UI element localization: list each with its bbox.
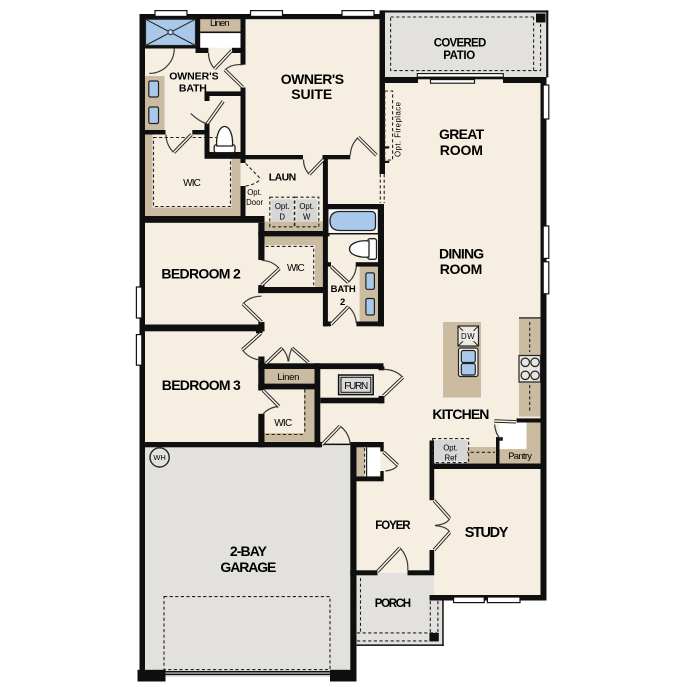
svg-text:BEDROOM 3: BEDROOM 3 xyxy=(162,377,241,393)
svg-text:PORCH: PORCH xyxy=(375,598,411,610)
svg-text:Opt.: Opt. xyxy=(443,444,458,453)
svg-text:WIC: WIC xyxy=(274,418,292,429)
svg-text:Opt.: Opt. xyxy=(275,202,290,211)
svg-text:ROOM: ROOM xyxy=(440,142,483,158)
svg-text:DW: DW xyxy=(461,332,475,341)
svg-text:WH: WH xyxy=(153,453,166,462)
svg-text:COVERED: COVERED xyxy=(434,38,487,50)
svg-text:D: D xyxy=(279,212,285,221)
svg-text:2: 2 xyxy=(340,297,345,308)
svg-text:ROOM: ROOM xyxy=(440,261,483,277)
svg-text:Ref: Ref xyxy=(445,454,458,463)
svg-text:Door: Door xyxy=(246,198,263,207)
svg-text:PATIO: PATIO xyxy=(443,50,475,62)
svg-text:STUDY: STUDY xyxy=(465,525,509,541)
svg-text:DINING: DINING xyxy=(439,245,484,261)
svg-text:LAUN: LAUN xyxy=(269,172,297,184)
svg-text:Opt.: Opt. xyxy=(247,188,262,197)
svg-text:2-BAY: 2-BAY xyxy=(230,543,268,559)
svg-text:BEDROOM 2: BEDROOM 2 xyxy=(161,266,241,282)
svg-text:W: W xyxy=(303,212,311,221)
svg-text:WIC: WIC xyxy=(287,263,305,274)
svg-text:Pantry: Pantry xyxy=(508,451,532,462)
svg-text:OWNER'S: OWNER'S xyxy=(169,70,218,82)
svg-text:WIC: WIC xyxy=(183,178,201,189)
svg-text:Opt. Fireplace: Opt. Fireplace xyxy=(394,102,403,157)
svg-text:Linen: Linen xyxy=(210,18,230,29)
svg-text:SUITE: SUITE xyxy=(291,86,332,102)
svg-text:Opt.: Opt. xyxy=(299,202,314,211)
svg-text:FURN: FURN xyxy=(344,381,368,392)
svg-text:Linen: Linen xyxy=(277,372,299,383)
svg-text:OWNER'S: OWNER'S xyxy=(281,71,344,87)
svg-text:BATH: BATH xyxy=(331,284,356,295)
svg-text:GARAGE: GARAGE xyxy=(220,559,276,575)
svg-text:FOYER: FOYER xyxy=(375,520,411,532)
svg-text:GREAT: GREAT xyxy=(439,126,485,142)
svg-text:BATH: BATH xyxy=(179,83,207,95)
svg-text:KITCHEN: KITCHEN xyxy=(432,406,489,422)
